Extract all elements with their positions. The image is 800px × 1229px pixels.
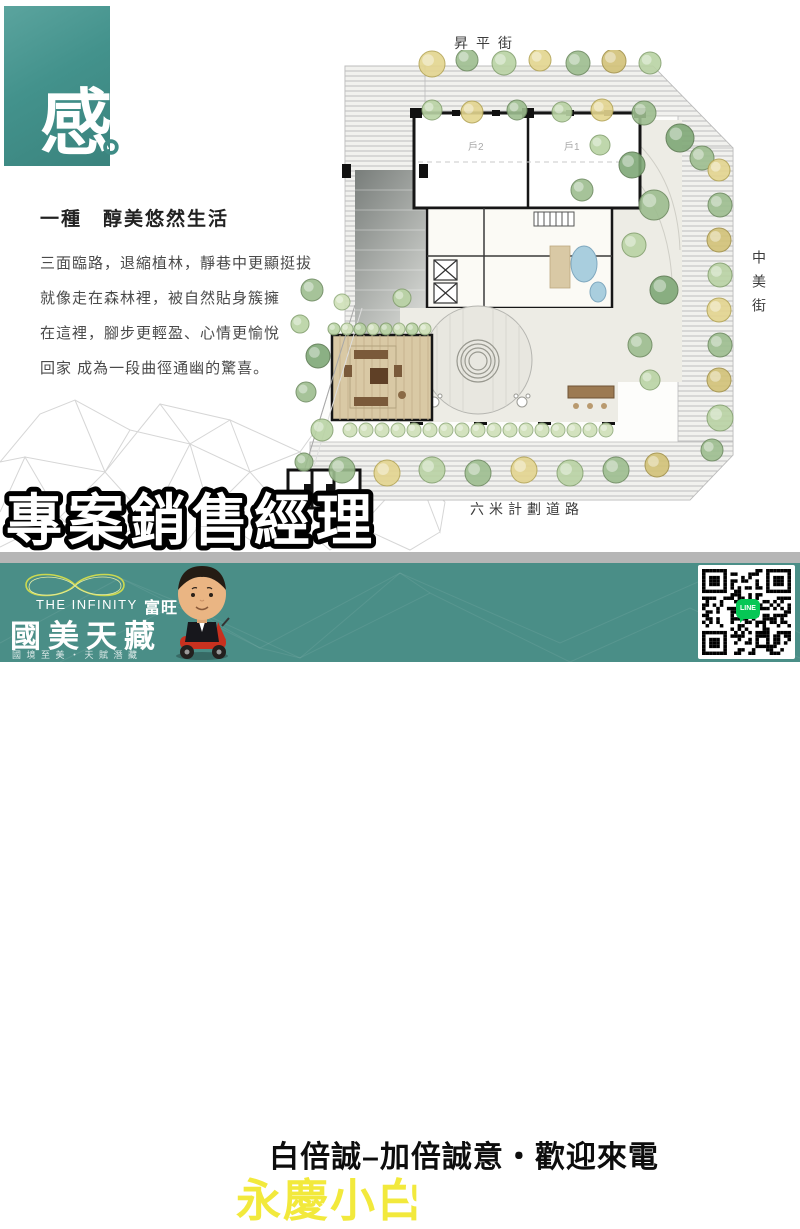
intro-line-3: 在這裡，腳步更輕盈、心情更愉悅 [40,316,330,351]
agent-name: 永慶小白 [236,1164,424,1229]
agent-caricature [162,560,242,662]
unit-2-label: 戶2 [468,141,484,153]
intro-heading: 一種 醇美悠然生活 [40,204,229,231]
street-label-top: 昇平街 [427,33,547,53]
phone-number: 0987-212312 [404,1163,697,1217]
lobby-lounge [332,335,432,420]
intro-paragraph: 三面臨路，退縮植林，靜巷中更顯挺拔 就像走在森林裡，被自然貼身簇擁 在這裡，腳步… [40,246,330,386]
line-logo: LINE [736,599,760,619]
brand-en: THE INFINITY [36,597,138,612]
intro-line-4: 回家 成為一段曲徑通幽的驚喜。 [40,351,330,386]
intro-line-2: 就像走在森林裡，被自然貼身簇擁 [40,281,330,316]
hero-period: 。 [102,112,148,158]
brand-tagline: 國境至美・天賦潛藏 [12,648,143,661]
overlay-title: 專案銷售經理 [0,470,430,560]
unit-1-label: 戶1 [564,141,580,153]
intro-line-1: 三面臨路，退縮植林，靜巷中更顯挺拔 [40,246,330,281]
site-plan: 戶2 戶1 [282,50,757,515]
divider-bar [0,552,800,563]
street-label-right: 中美街 [749,250,769,322]
street-label-bottom: 六米計劃道路 [452,499,602,519]
bottom-banner: THE INFINITY 富旺 國美天藏 國境至美・天賦潛藏 白倍誠–加倍誠意・… [0,563,800,662]
overlay-title-text: 專案銷售經理 [6,489,378,552]
reception-desk [568,386,614,398]
stairs-icon [534,212,574,226]
